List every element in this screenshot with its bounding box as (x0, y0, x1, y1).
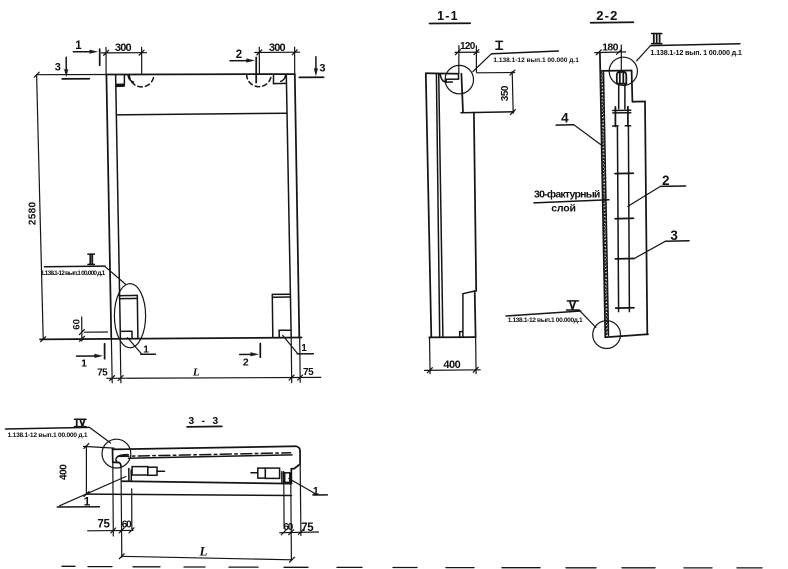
svg-text:60: 60 (72, 319, 83, 330)
svg-text:4: 4 (561, 110, 569, 125)
svg-text:75: 75 (97, 368, 108, 379)
svg-text:2580: 2580 (27, 202, 38, 226)
svg-text:3: 3 (55, 62, 61, 74)
svg-text:1: 1 (301, 343, 307, 354)
svg-text:1: 1 (81, 358, 87, 370)
svg-text:2-2: 2-2 (596, 8, 618, 23)
svg-text:L: L (199, 543, 208, 558)
svg-text:75: 75 (97, 518, 110, 530)
svg-text:1: 1 (75, 40, 82, 52)
svg-text:75: 75 (303, 367, 314, 378)
svg-text:350: 350 (500, 85, 511, 101)
svg-text:2: 2 (243, 356, 249, 368)
svg-text:2: 2 (236, 49, 242, 61)
svg-text:1: 1 (143, 345, 149, 356)
svg-text:120: 120 (460, 41, 476, 52)
svg-text:1-1: 1-1 (437, 9, 459, 23)
svg-text:300: 300 (269, 42, 286, 54)
svg-text:1.138.1-12 вып.1 00.000 д.1: 1.138.1-12 вып.1 00.000 д.1 (8, 432, 88, 439)
svg-text:400: 400 (443, 359, 460, 371)
svg-text:1.138.1-12 вып.1 00.000д.1: 1.138.1-12 вып.1 00.000д.1 (508, 317, 583, 324)
svg-text:1.138.1-12 вып. 1 00.000 д.1: 1.138.1-12 вып. 1 00.000 д.1 (650, 48, 742, 57)
svg-text:1.138.1-12 вып.1 00.000 д.1: 1.138.1-12 вып.1 00.000 д.1 (41, 270, 106, 277)
svg-text:30-фактурный: 30-фактурный (534, 189, 600, 201)
svg-text:1: 1 (84, 494, 91, 508)
svg-text:1.138.1-12 вып.1 00.000 д.1: 1.138.1-12 вып.1 00.000 д.1 (493, 57, 579, 64)
svg-text:180: 180 (602, 41, 618, 53)
svg-text:300: 300 (115, 42, 132, 54)
svg-text:слой: слой (551, 202, 575, 214)
svg-text:400: 400 (59, 464, 70, 480)
svg-text:3: 3 (319, 63, 325, 75)
svg-text:1: 1 (313, 485, 319, 497)
svg-text:L: L (192, 366, 200, 378)
svg-text:3 - 3: 3 - 3 (188, 415, 220, 427)
